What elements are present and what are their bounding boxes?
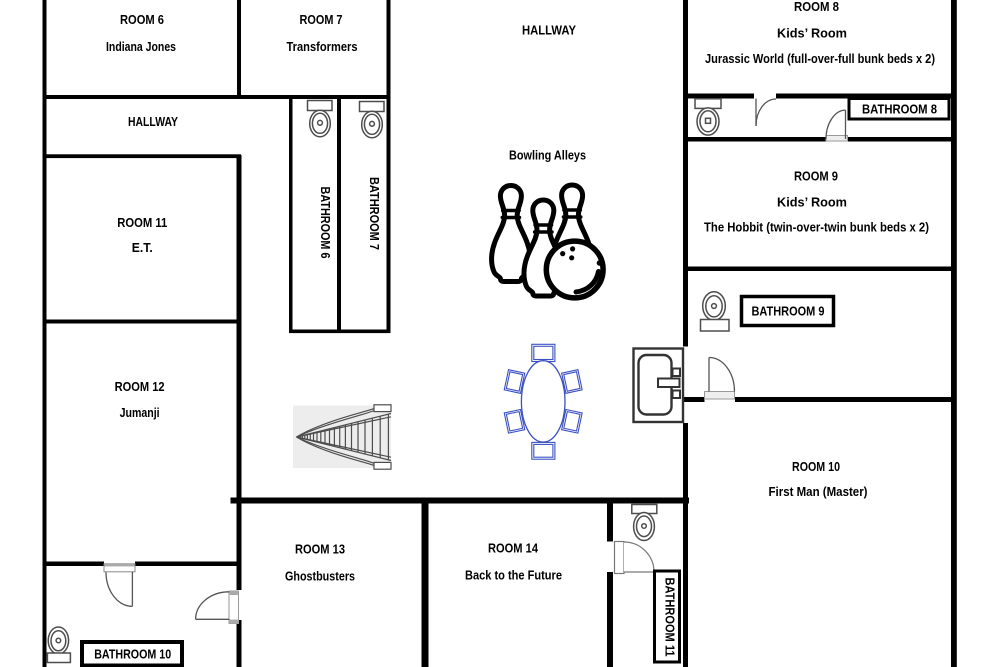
svg-text:BATHROOM 7: BATHROOM 7	[367, 177, 382, 250]
svg-text:Jumanji: Jumanji	[120, 405, 160, 420]
svg-text:Transformers: Transformers	[287, 39, 358, 54]
svg-text:Kids’ Room: Kids’ Room	[777, 26, 847, 41]
svg-text:ROOM 11: ROOM 11	[117, 215, 167, 230]
svg-text:BATHROOM 8: BATHROOM 8	[862, 102, 937, 117]
svg-text:ROOM 13: ROOM 13	[295, 542, 345, 557]
svg-text:Jurassic World (full-over-full: Jurassic World (full-over-full bunk beds…	[705, 51, 935, 66]
svg-text:ROOM 8: ROOM 8	[794, 0, 839, 14]
svg-text:BATHROOM 11: BATHROOM 11	[663, 578, 678, 657]
svg-text:ROOM 6: ROOM 6	[120, 12, 164, 27]
svg-text:Kids’ Room: Kids’ Room	[777, 195, 847, 210]
svg-text:Indiana Jones: Indiana Jones	[106, 39, 176, 54]
svg-text:Ghostbusters: Ghostbusters	[285, 569, 355, 584]
svg-text:ROOM 10: ROOM 10	[792, 459, 840, 474]
svg-text:BATHROOM 10: BATHROOM 10	[94, 647, 171, 662]
svg-text:ROOM 12: ROOM 12	[115, 379, 165, 394]
svg-text:ROOM 9: ROOM 9	[794, 169, 838, 184]
svg-text:HALLWAY: HALLWAY	[128, 114, 178, 129]
svg-text:Back to the Future: Back to the Future	[465, 568, 562, 583]
svg-text:Bowling Alleys: Bowling Alleys	[509, 148, 586, 163]
svg-text:BATHROOM 6: BATHROOM 6	[318, 187, 333, 259]
svg-text:HALLWAY: HALLWAY	[522, 23, 576, 38]
svg-text:E.T.: E.T.	[132, 240, 153, 255]
svg-text:First Man (Master): First Man (Master)	[769, 484, 868, 499]
svg-text:ROOM 7: ROOM 7	[300, 12, 343, 27]
svg-text:BATHROOM 9: BATHROOM 9	[752, 304, 825, 319]
svg-text:ROOM 14: ROOM 14	[488, 541, 539, 556]
svg-text:The Hobbit (twin-over-twin bun: The Hobbit (twin-over-twin bunk beds x 2…	[704, 220, 929, 235]
